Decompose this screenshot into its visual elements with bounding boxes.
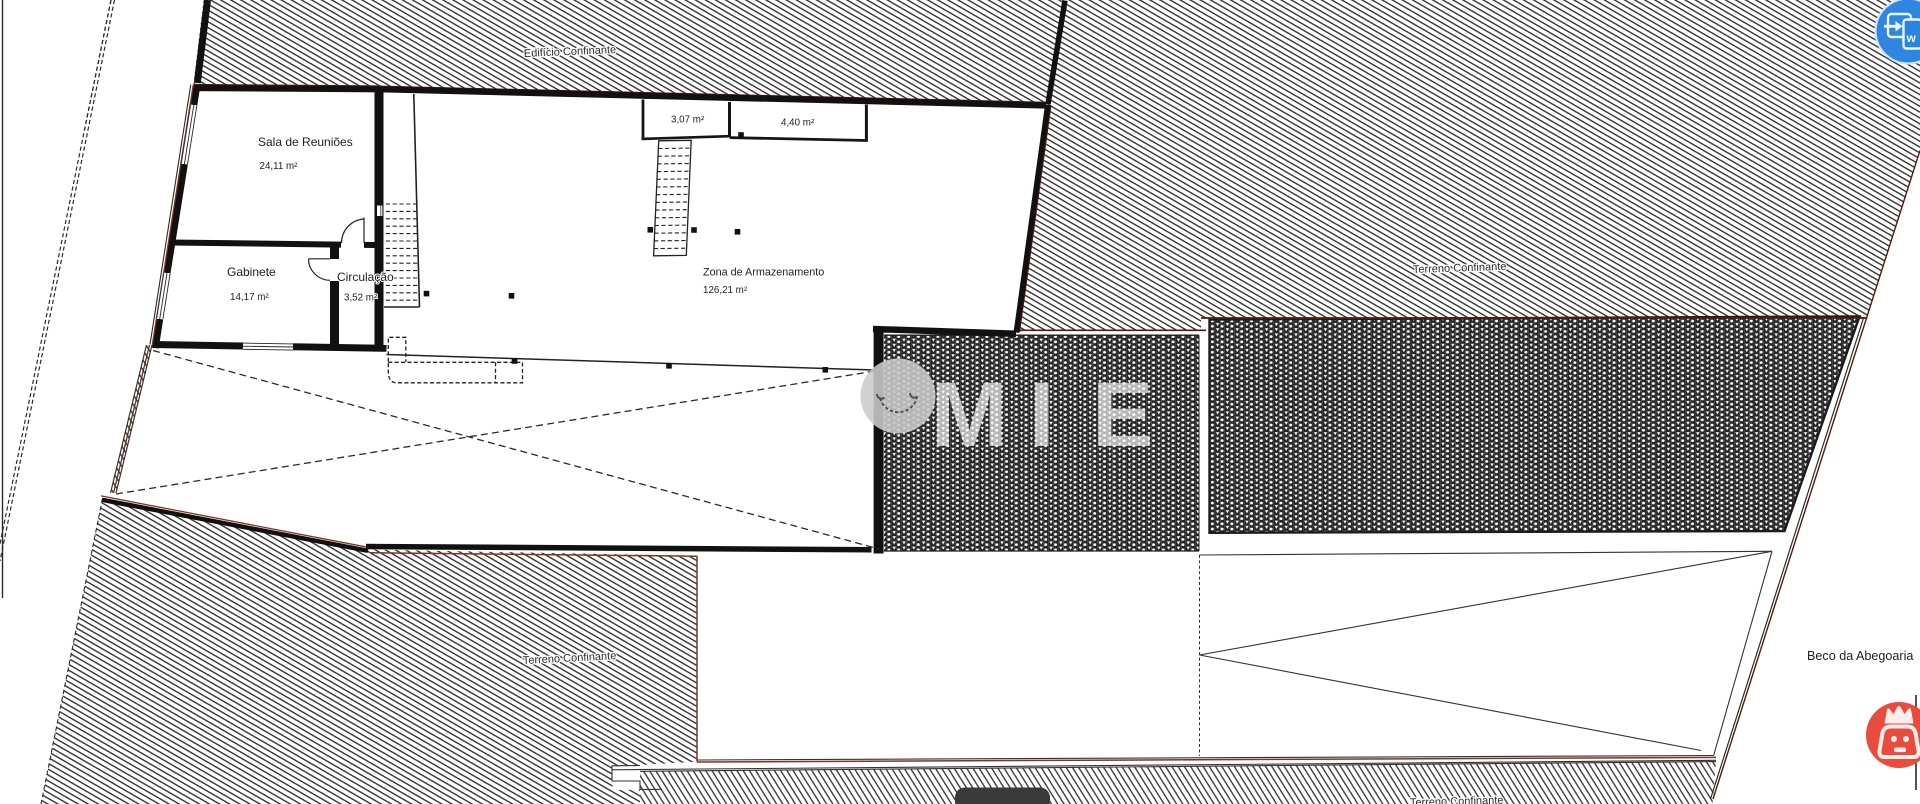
svg-text:4,40 m²: 4,40 m² <box>781 118 815 129</box>
svg-text:Beco da Abegoaria: Beco da Abegoaria <box>1807 649 1913 663</box>
svg-text:E: E <box>1092 364 1153 466</box>
svg-text:3,52 m²: 3,52 m² <box>344 293 378 304</box>
svg-text:126,21 m²: 126,21 m² <box>703 285 748 296</box>
svg-text:I: I <box>1029 364 1055 466</box>
svg-text:Circulação: Circulação <box>337 270 394 284</box>
svg-text:Zona de Armazenamento: Zona de Armazenamento <box>703 267 824 279</box>
svg-text:3,07 m²: 3,07 m² <box>671 115 705 126</box>
svg-text:14,17 m²: 14,17 m² <box>230 292 269 303</box>
svg-text:w: w <box>1906 31 1917 45</box>
svg-text:Sala de Reuniões: Sala de Reuniões <box>258 135 353 149</box>
svg-text:24,11 m²: 24,11 m² <box>260 161 299 172</box>
svg-text:Terreno Confinante: Terreno Confinante <box>1410 795 1504 804</box>
svg-text:Gabinete: Gabinete <box>227 265 276 279</box>
svg-text:M: M <box>931 364 1008 466</box>
